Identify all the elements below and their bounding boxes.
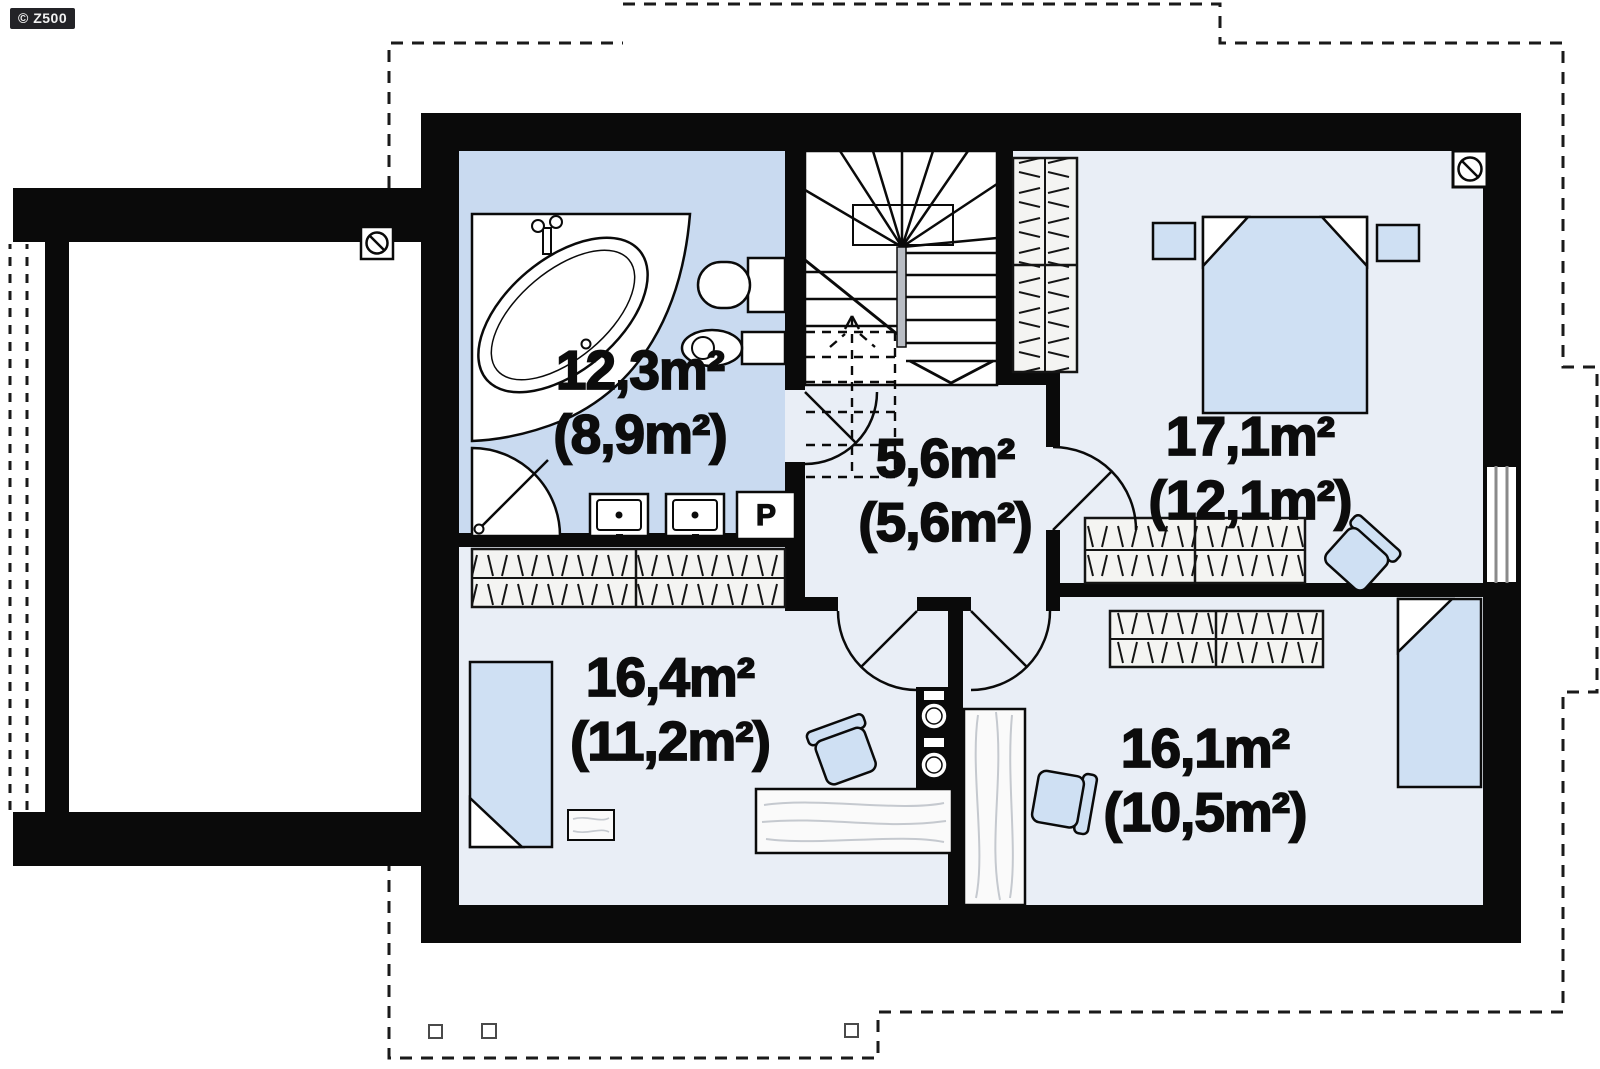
toilet-icon (698, 258, 785, 312)
room-area: 17,1m² (1060, 404, 1440, 468)
washbasin-icon (666, 494, 724, 539)
wardrobe-icon (1110, 611, 1323, 667)
wardrobe-icon (1013, 158, 1077, 372)
washbasin-icon (590, 494, 648, 539)
z500-watermark-badge: © Z500 (10, 8, 75, 29)
chimney-icon (1453, 151, 1487, 187)
window-icon (1486, 466, 1517, 583)
left-wing (13, 188, 459, 866)
room-area-after-slopes: (12,1m²) (1060, 468, 1440, 532)
rug-icon (568, 810, 614, 840)
wardrobe-icon (472, 549, 785, 607)
post-marker (429, 1024, 858, 1038)
room-area: 16,1m² (1015, 716, 1395, 780)
room-area: 12,3m² (450, 338, 830, 402)
plant-shelf-icon (916, 687, 952, 788)
room-area: 16,4m² (480, 645, 860, 709)
chimney-icon (361, 227, 393, 259)
room-label-bedroom-top-right: 17,1m² (12,1m²) (1060, 404, 1440, 532)
room-label-bedroom-bottom-right: 16,1m² (10,5m²) (1015, 716, 1395, 844)
nightstand-icon (1153, 223, 1195, 259)
floor-plan-page: © Z500 12,3m² (8,9m²) 5,6m² (5,6m²) 17,1… (0, 0, 1600, 1069)
washing-machine-label: P (737, 492, 795, 539)
desk-icon (756, 789, 952, 853)
left-wing-room (72, 242, 421, 812)
single-bed-icon (1398, 599, 1481, 787)
nightstand-icon (1377, 225, 1419, 261)
room-area-after-slopes: (11,2m²) (480, 709, 860, 773)
room-label-bedroom-bottom-left: 16,4m² (11,2m²) (480, 645, 860, 773)
room-area-after-slopes: (10,5m²) (1015, 780, 1395, 844)
